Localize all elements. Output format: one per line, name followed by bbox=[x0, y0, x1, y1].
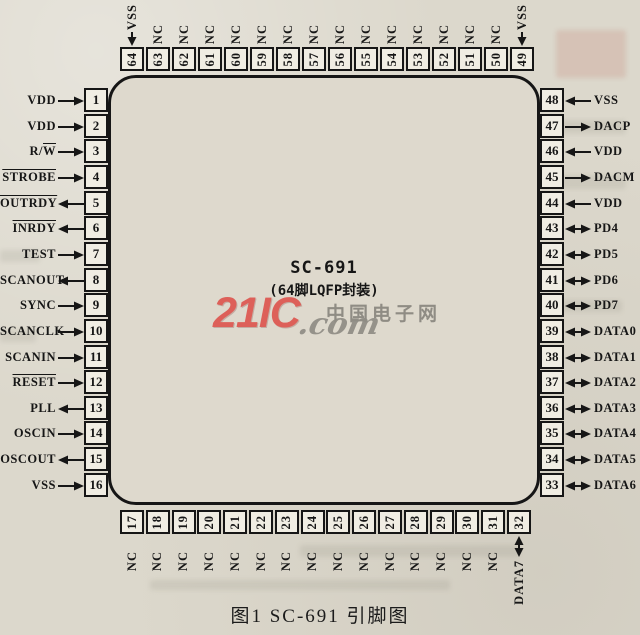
pin-number-box: 11 bbox=[84, 345, 108, 369]
pin-number-box: 21 bbox=[223, 510, 247, 534]
pin-number-box: 26 bbox=[352, 510, 376, 534]
arrow-input-icon bbox=[58, 171, 84, 189]
pin-label: VDD bbox=[0, 117, 56, 135]
pin-number-box: 39 bbox=[540, 319, 564, 343]
pin-number-box: 42 bbox=[540, 242, 564, 266]
pin-number-box: 22 bbox=[249, 510, 273, 534]
pin-number-box: 12 bbox=[84, 370, 108, 394]
arrow-output-icon bbox=[58, 274, 84, 292]
pin-label: NC bbox=[174, 2, 194, 44]
pin-label: NC bbox=[304, 2, 324, 44]
chip-body: SC-691 (64脚LQFP封装) bbox=[108, 75, 540, 505]
arrow-input-icon bbox=[565, 94, 591, 112]
pin-label: NC bbox=[486, 2, 506, 44]
pin-label: VSS bbox=[594, 91, 640, 109]
pin-number-box: 6 bbox=[84, 216, 108, 240]
pin-number-box: 10 bbox=[84, 319, 108, 343]
pin-label: VSS bbox=[512, 0, 532, 30]
arrow-bidirectional-icon bbox=[565, 325, 591, 343]
pin-label: VSS bbox=[122, 0, 142, 30]
arrow-bidirectional-icon bbox=[565, 351, 591, 369]
pin-label: NC bbox=[226, 2, 246, 44]
pin-number-box: 27 bbox=[378, 510, 402, 534]
pin-number-box: 51 bbox=[458, 47, 482, 71]
pin-number-box: 48 bbox=[540, 88, 564, 112]
pin-label: NC bbox=[330, 2, 350, 44]
arrow-input-icon bbox=[58, 145, 84, 163]
pin-label: PLL bbox=[0, 399, 56, 417]
pin-label: VDD bbox=[0, 91, 56, 109]
arrow-output-icon bbox=[58, 197, 84, 215]
arrow-input-icon bbox=[58, 299, 84, 317]
pin-label: OSCIN bbox=[0, 424, 56, 442]
arrow-input-icon bbox=[126, 32, 138, 51]
arrow-input-icon bbox=[58, 248, 84, 266]
pin-label: PD4 bbox=[594, 219, 640, 237]
pin-number-box: 41 bbox=[540, 268, 564, 292]
pin-number-box: 24 bbox=[301, 510, 325, 534]
pin-number-box: 58 bbox=[276, 47, 300, 71]
figure-caption: 图1 SC-691 引脚图 bbox=[0, 601, 640, 628]
chip-package-label: (64脚LQFP封装) bbox=[111, 280, 537, 300]
pin-label: DATA3 bbox=[594, 399, 640, 417]
pin-number-box: 20 bbox=[197, 510, 221, 534]
pin-number-box: 4 bbox=[84, 165, 108, 189]
pin-number-box: 28 bbox=[404, 510, 428, 534]
pin-number-box: 9 bbox=[84, 293, 108, 317]
pin-label: DATA1 bbox=[594, 348, 640, 366]
pin-label: SCANIN bbox=[0, 348, 56, 366]
arrow-input-icon bbox=[58, 351, 84, 369]
pin-number-box: 56 bbox=[328, 47, 352, 71]
pin-number-box: 18 bbox=[146, 510, 170, 534]
arrow-input-icon bbox=[58, 120, 84, 138]
arrow-input-icon bbox=[516, 32, 528, 51]
arrow-input-icon bbox=[58, 94, 84, 112]
arrow-input-icon bbox=[58, 427, 84, 445]
pin-number-box: 45 bbox=[540, 165, 564, 189]
arrow-input-icon bbox=[58, 325, 84, 343]
pin-label: NC bbox=[278, 2, 298, 44]
pin-number-box: 25 bbox=[326, 510, 350, 534]
pin-label: DATA2 bbox=[594, 373, 640, 391]
arrow-output-icon bbox=[58, 222, 84, 240]
pin-label: OUTRDY bbox=[0, 194, 56, 212]
pin-number-box: 46 bbox=[540, 139, 564, 163]
arrow-bidirectional-icon bbox=[565, 479, 591, 497]
pin-label: PD5 bbox=[594, 245, 640, 263]
pin-label: DATA4 bbox=[594, 424, 640, 442]
pin-number-box: 37 bbox=[540, 370, 564, 394]
pin-label: RESET bbox=[0, 373, 56, 391]
arrow-output-icon bbox=[58, 453, 84, 471]
pin-number-box: 35 bbox=[540, 421, 564, 445]
pin-number-box: 57 bbox=[302, 47, 326, 71]
pin-label: NC bbox=[460, 2, 480, 44]
pin-number-box: 19 bbox=[172, 510, 196, 534]
pin-label: SCANOUT bbox=[0, 271, 56, 289]
pin-label: STROBE bbox=[0, 168, 56, 186]
pin-number-box: 29 bbox=[430, 510, 454, 534]
arrow-bidirectional-icon bbox=[565, 402, 591, 420]
pin-number-box: 30 bbox=[455, 510, 479, 534]
chip-name: SC-691 bbox=[111, 258, 537, 278]
pin-label: NC bbox=[434, 2, 454, 44]
pin-label: INRDY bbox=[0, 219, 56, 237]
pin-number-box: 15 bbox=[84, 447, 108, 471]
pin-number-box: 38 bbox=[540, 345, 564, 369]
pin-label: NC bbox=[252, 2, 272, 44]
arrow-output-icon bbox=[565, 120, 591, 138]
pin-number-box: 36 bbox=[540, 396, 564, 420]
pin-label: PD7 bbox=[594, 296, 640, 314]
pin-number-box: 44 bbox=[540, 191, 564, 215]
pin-label: NC bbox=[408, 2, 428, 44]
pin-label: VDD bbox=[594, 194, 640, 212]
pin-number-box: 63 bbox=[146, 47, 170, 71]
pin-number-box: 3 bbox=[84, 139, 108, 163]
arrow-input-icon bbox=[58, 479, 84, 497]
pin-label: R/W bbox=[0, 142, 56, 160]
pin-number-box: 1 bbox=[84, 88, 108, 112]
pin-label: SYNC bbox=[0, 296, 56, 314]
pin-number-box: 62 bbox=[172, 47, 196, 71]
paper-bleed-artifact bbox=[556, 30, 626, 78]
pin-number-box: 47 bbox=[540, 114, 564, 138]
pin-label: DATA0 bbox=[594, 322, 640, 340]
pin-number-box: 32 bbox=[507, 510, 531, 534]
arrow-bidirectional-icon bbox=[565, 453, 591, 471]
pin-label: NC bbox=[382, 2, 402, 44]
pin-number-box: 43 bbox=[540, 216, 564, 240]
pin-number-box: 53 bbox=[406, 47, 430, 71]
pin-number-box: 16 bbox=[84, 473, 108, 497]
pin-label: TEST bbox=[0, 245, 56, 263]
pin-number-box: 34 bbox=[540, 447, 564, 471]
pin-label: VDD bbox=[594, 142, 640, 160]
pin-number-box: 54 bbox=[380, 47, 404, 71]
arrow-bidirectional-icon bbox=[513, 536, 525, 562]
pin-number-box: 59 bbox=[250, 47, 274, 71]
pin-number-box: 31 bbox=[481, 510, 505, 534]
pin-label: DATA6 bbox=[594, 476, 640, 494]
pin-number-box: 50 bbox=[484, 47, 508, 71]
arrow-bidirectional-icon bbox=[565, 222, 591, 240]
arrow-output-icon bbox=[565, 171, 591, 189]
pin-number-box: 17 bbox=[120, 510, 144, 534]
pin-label: DACP bbox=[594, 117, 640, 135]
arrow-bidirectional-icon bbox=[565, 299, 591, 317]
pin-number-box: 33 bbox=[540, 473, 564, 497]
pin-number-box: 61 bbox=[198, 47, 222, 71]
pin-number-box: 52 bbox=[432, 47, 456, 71]
arrow-input-icon bbox=[58, 376, 84, 394]
pin-number-box: 23 bbox=[275, 510, 299, 534]
arrow-bidirectional-icon bbox=[565, 274, 591, 292]
pin-number-box: 5 bbox=[84, 191, 108, 215]
pin-label: OSCOUT bbox=[0, 450, 56, 468]
pin-number-box: 2 bbox=[84, 114, 108, 138]
scanned-pinout-figure: SC-691 (64脚LQFP封装) 21IC .com 中国电子网 1VDD2… bbox=[0, 0, 640, 635]
pin-number-box: 55 bbox=[354, 47, 378, 71]
pin-number-box: 13 bbox=[84, 396, 108, 420]
pin-label: DACM bbox=[594, 168, 640, 186]
pin-label: SCANCLK bbox=[0, 322, 56, 340]
pin-number-box: 14 bbox=[84, 421, 108, 445]
pin-number-box: 8 bbox=[84, 268, 108, 292]
pin-label: NC bbox=[356, 2, 376, 44]
pin-number-box: 60 bbox=[224, 47, 248, 71]
pin-number-box: 40 bbox=[540, 293, 564, 317]
pin-number-box: 7 bbox=[84, 242, 108, 266]
pin-label: PD6 bbox=[594, 271, 640, 289]
pin-label: DATA5 bbox=[594, 450, 640, 468]
pin-label: NC bbox=[148, 2, 168, 44]
arrow-bidirectional-icon bbox=[565, 376, 591, 394]
arrow-bidirectional-icon bbox=[565, 427, 591, 445]
pin-label: VSS bbox=[0, 476, 56, 494]
arrow-output-icon bbox=[58, 402, 84, 420]
pin-label: NC bbox=[200, 2, 220, 44]
arrow-input-icon bbox=[565, 197, 591, 215]
arrow-bidirectional-icon bbox=[565, 248, 591, 266]
arrow-input-icon bbox=[565, 145, 591, 163]
